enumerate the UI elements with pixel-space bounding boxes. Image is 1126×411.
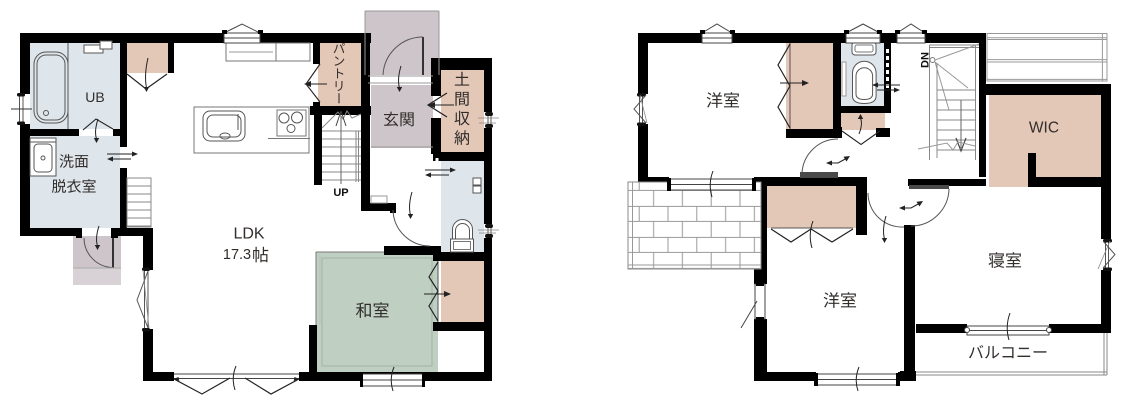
svg-text:UB: UB — [85, 89, 104, 105]
svg-text:17.3: 17.3 — [223, 247, 251, 263]
svg-text:LDK: LDK — [233, 226, 264, 243]
svg-text:DN: DN — [920, 52, 932, 68]
svg-text:UP: UP — [333, 187, 348, 199]
svg-text:WIC: WIC — [1029, 120, 1059, 137]
